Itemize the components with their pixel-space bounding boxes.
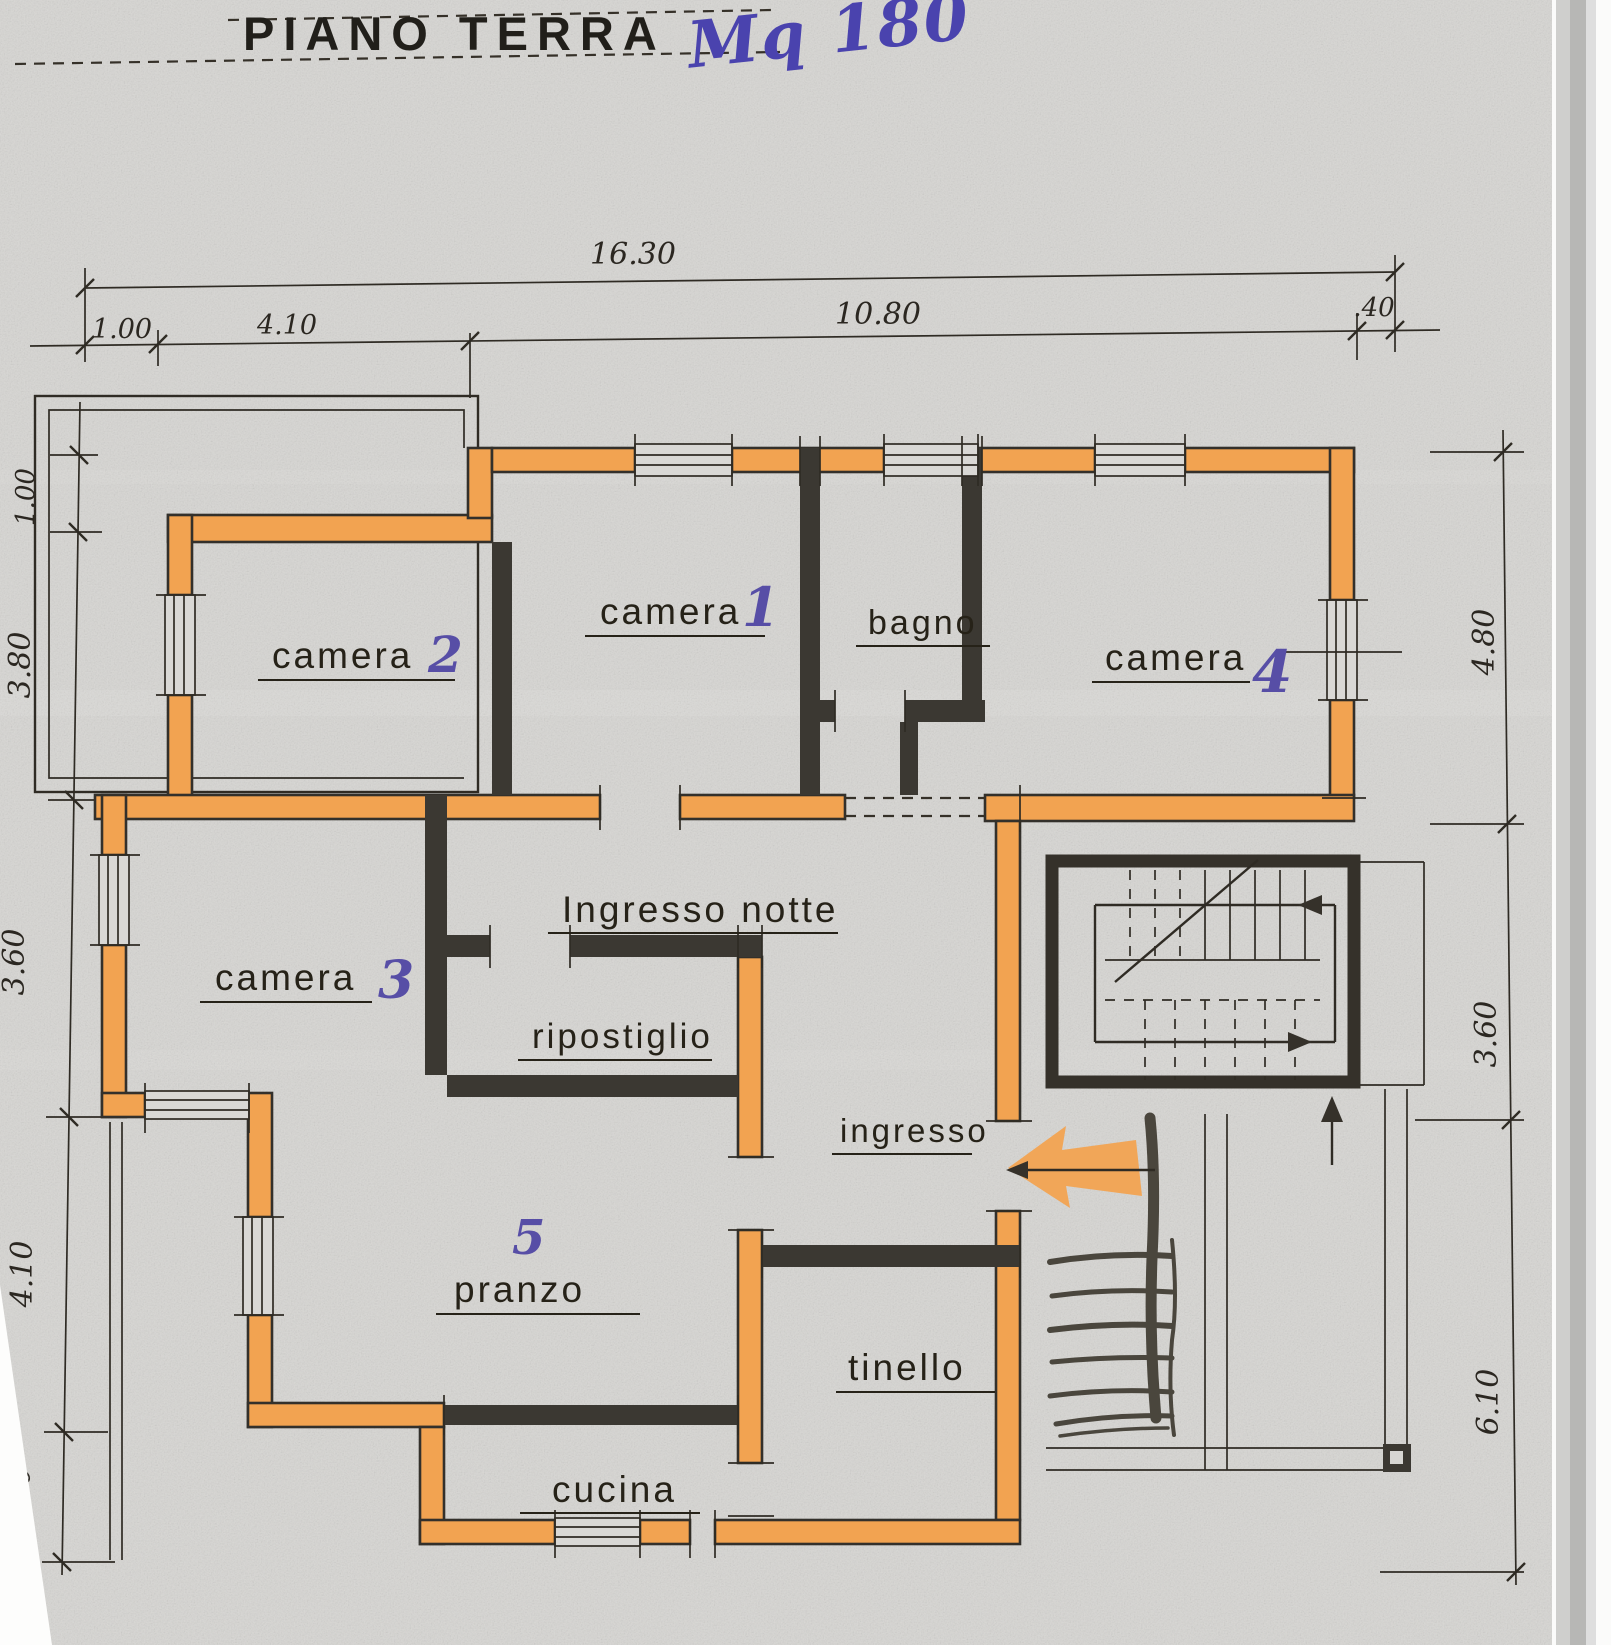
dim-top-seg-2: 4.10 [256,310,317,341]
room-label-bagno: bagno [868,604,978,642]
room-ripostiglio: ripostiglio [518,1017,713,1060]
room-label-camera2: camera [272,635,413,676]
room-label-camera4: camera [1105,637,1246,678]
room-ingresso: ingresso [832,1112,989,1154]
room-label-camera1: camera [600,591,741,632]
room-bagno: bagno [856,604,990,646]
room-number-pranzo: 5 [512,1210,545,1266]
dim-left-1: 1.00 [11,468,41,526]
dim-top-seg-4: .40 [1353,293,1394,323]
scanned-floor-plan-page: PIANO TERRA Mq 180 16.30 1.00 4.10 10.80… [0,0,1611,1645]
room-label-ingresso: ingresso [840,1112,989,1149]
room-label-pranzo: pranzo [454,1269,585,1310]
dim-right-3: 6.10 [1471,1369,1506,1436]
room-number-camera3: 3 [378,950,414,1011]
dim-right-1: 4.80 [1467,609,1502,677]
room-camera3: camera 3 [200,950,414,1011]
dim-left-3: 3.60 [0,929,32,996]
room-number-camera2: 2 [427,625,463,684]
room-number-camera4: 4 [1252,638,1292,706]
room-label-tinello: tinello [848,1347,966,1388]
dim-right-2: 3.60 [1469,1001,1504,1068]
dim-top-seg-3: 10.80 [835,297,921,332]
room-label-ripostiglio: ripostiglio [532,1017,713,1056]
dim-left-4: 4.10 [5,1241,40,1309]
room-label-camera3: camera [215,957,356,998]
room-number-camera1: 1 [742,575,780,639]
floor-plan-drawing: PIANO TERRA Mq 180 16.30 1.00 4.10 10.80… [0,0,1611,1645]
room-ingresso-notte: Ingresso notte [548,889,838,933]
page-title: PIANO TERRA [243,7,666,60]
room-label-cucina: cucina [552,1469,677,1510]
room-label-ingresso-notte: Ingresso notte [562,889,838,930]
dim-top-seg-1: 1.00 [92,314,152,345]
paper-grain [0,0,1556,1645]
dim-top-total: 16.30 [590,237,676,272]
dim-left-2: 3.80 [3,632,38,699]
